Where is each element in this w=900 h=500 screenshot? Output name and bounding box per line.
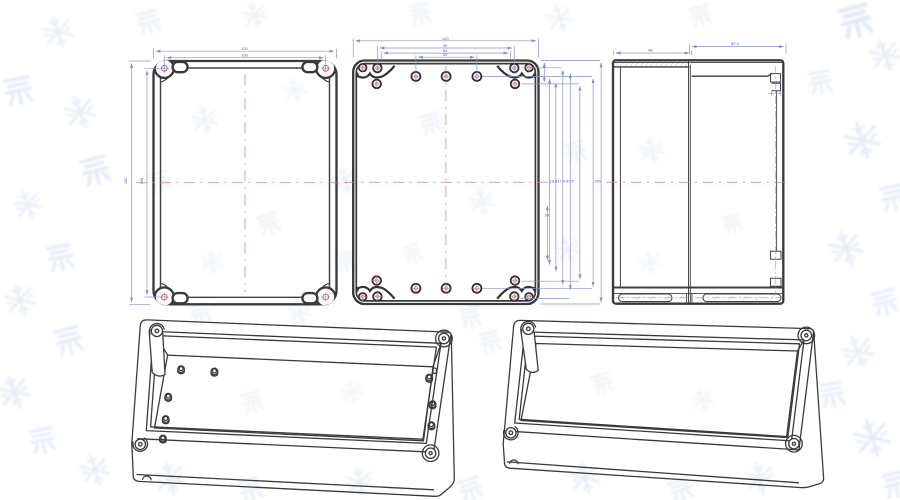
svg-text:120: 120 — [241, 46, 248, 51]
svg-text:48: 48 — [648, 47, 653, 52]
svg-text:40: 40 — [443, 52, 448, 57]
svg-text:108: 108 — [241, 53, 248, 58]
svg-text:62,4: 62,4 — [731, 41, 740, 46]
svg-text:200: 200 — [123, 177, 128, 184]
svg-text:120: 120 — [442, 36, 449, 41]
svg-text:17,4: 17,4 — [558, 178, 567, 183]
svg-text:97,5: 97,5 — [566, 178, 575, 183]
svg-text:200: 200 — [595, 178, 602, 183]
svg-text:59: 59 — [545, 213, 550, 218]
svg-text:168: 168 — [139, 177, 144, 184]
